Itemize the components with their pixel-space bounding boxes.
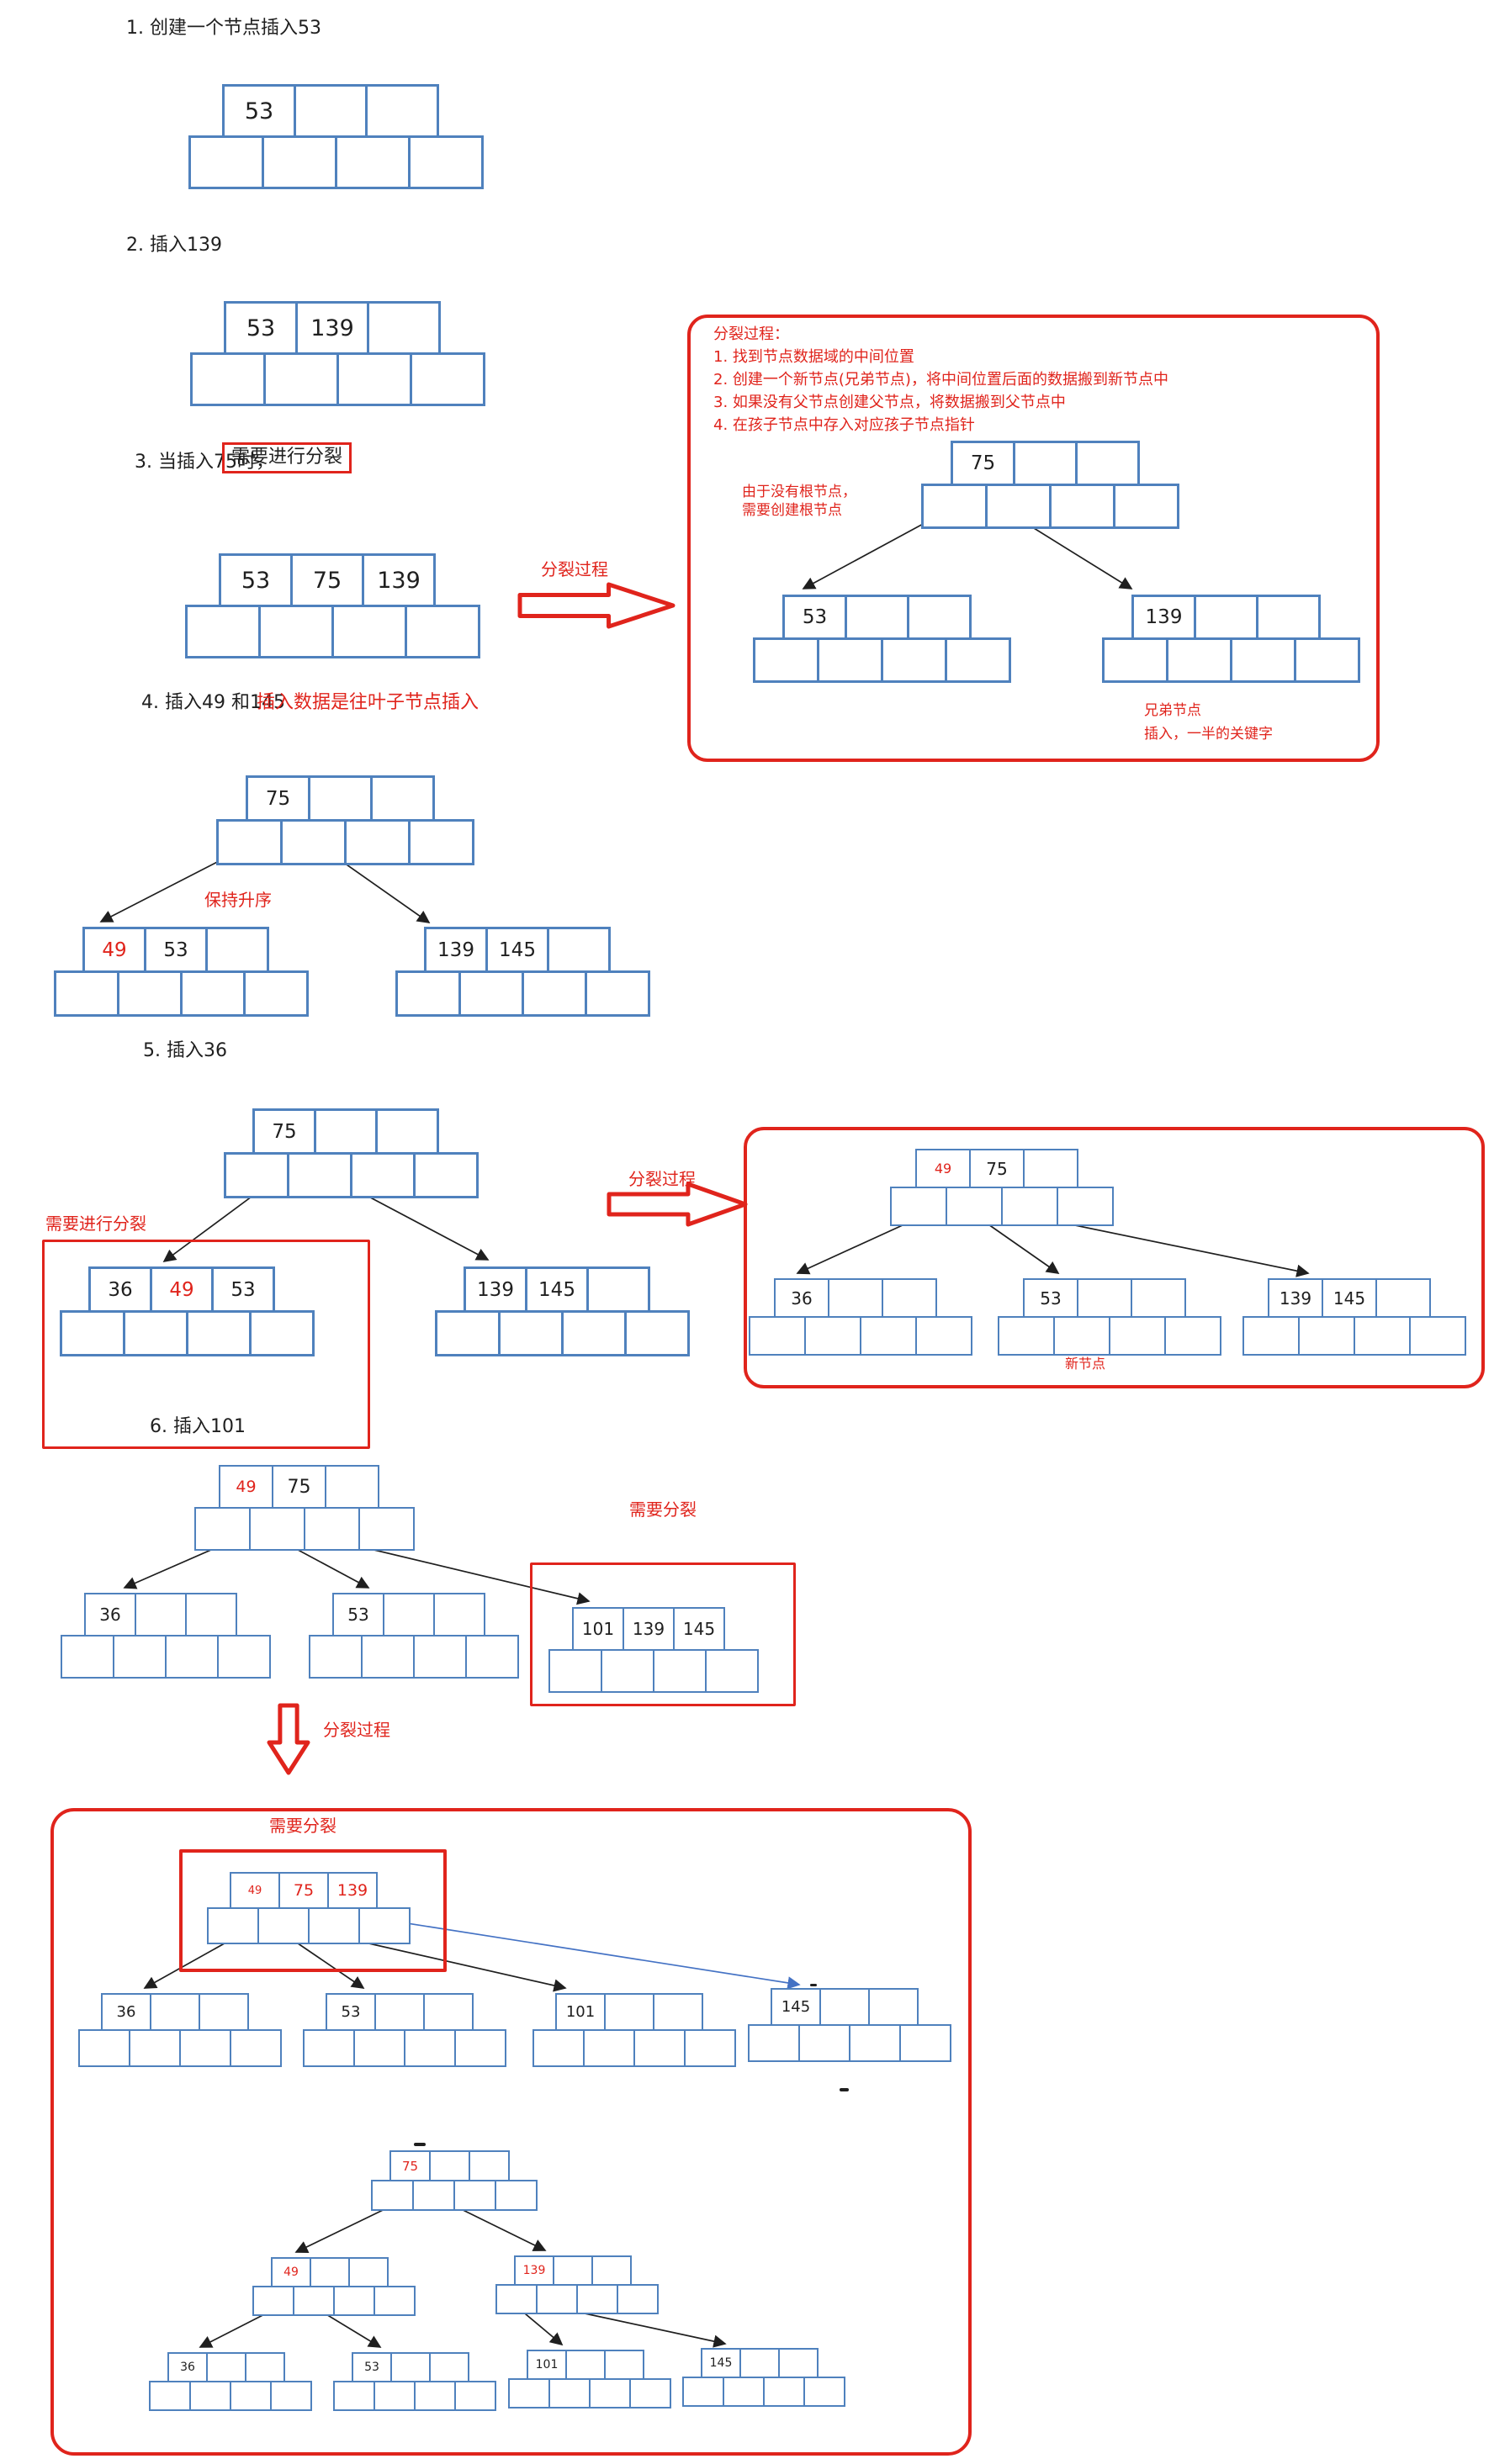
- pointer-row: [188, 135, 484, 189]
- key-cell: 139: [424, 927, 488, 973]
- pointer-cell: [548, 1649, 602, 1693]
- key-cell: [310, 2257, 350, 2287]
- pointer-cell: [190, 352, 266, 406]
- key-value: 49: [248, 1885, 262, 1897]
- key-value: 139: [633, 1619, 665, 1639]
- key-cell: 101: [527, 2350, 567, 2380]
- key-cell: 49: [82, 927, 146, 973]
- key-cell: 139: [623, 1607, 675, 1651]
- key-row: 4953: [82, 927, 269, 973]
- split-process-label-1: 分裂过程: [541, 558, 608, 580]
- insert-half-keys-note: 插入，一半的关键字: [1144, 725, 1273, 743]
- pointer-cell: [1113, 484, 1179, 529]
- key-cell: 145: [485, 927, 549, 973]
- key-cell: 139: [464, 1266, 527, 1313]
- key-value: 139: [377, 568, 421, 594]
- pointer-cell: [1242, 1316, 1300, 1356]
- key-value: 145: [781, 1998, 810, 2016]
- pointer-row: [890, 1187, 1114, 1226]
- pointer-cell: [1409, 1316, 1466, 1356]
- pointer-cell: [413, 1635, 467, 1679]
- pointer-cell: [498, 1310, 564, 1356]
- pointer-cell: [216, 819, 283, 865]
- pointer-cell: [890, 1187, 947, 1226]
- pointer-cell: [495, 2284, 538, 2314]
- pointer-cell: [522, 970, 587, 1017]
- pointer-cell: [408, 135, 484, 189]
- pointer-cell: [78, 2029, 130, 2067]
- pointer-cell: [230, 2381, 272, 2411]
- pointer-row: [998, 1316, 1221, 1356]
- pointer-cell: [257, 1907, 310, 1944]
- key-cell: 36: [167, 2352, 208, 2382]
- key-cell: 49: [915, 1149, 971, 1188]
- pointer-cell: [405, 605, 480, 658]
- pointer-cell: [1230, 637, 1296, 683]
- key-cell: 49: [271, 2257, 311, 2287]
- key-cell: [1256, 595, 1321, 640]
- pointer-cell: [374, 2381, 416, 2411]
- need-split-note-2: 需要分裂: [629, 1499, 697, 1520]
- pointer-cell: [249, 1310, 315, 1356]
- pointer-cell: [682, 2377, 724, 2407]
- pointer-cell: [188, 135, 264, 189]
- key-cell: [135, 1593, 187, 1636]
- pointer-cell: [921, 484, 988, 529]
- pointer-cell: [270, 2381, 312, 2411]
- key-value: 49: [935, 1161, 951, 1176]
- key-row: 36: [774, 1278, 937, 1318]
- pointer-row: [309, 1635, 519, 1679]
- key-cell: 139: [1268, 1278, 1323, 1318]
- key-value: 53: [347, 1605, 368, 1625]
- pointer-row: [333, 2381, 496, 2411]
- key-cell: 53: [1023, 1278, 1078, 1318]
- pointer-cell: [333, 2381, 375, 2411]
- pointer-cell: [798, 2024, 850, 2062]
- key-cell: [604, 1993, 654, 2031]
- pointer-row: [753, 637, 1011, 683]
- pointer-cell: [629, 2378, 671, 2408]
- key-cell: [868, 1988, 919, 2026]
- key-row: 4975: [219, 1465, 379, 1509]
- pointer-row: [207, 1907, 411, 1944]
- key-row: 145: [701, 2348, 819, 2378]
- key-cell: [374, 1993, 425, 2031]
- pointer-cell: [412, 2180, 455, 2211]
- key-cell: [308, 775, 373, 822]
- pointer-cell: [495, 2180, 538, 2211]
- split-step-1: 1. 找到节点数据域的中间位置: [713, 347, 914, 367]
- key-value: 49: [283, 2266, 299, 2279]
- key-cell: [370, 775, 435, 822]
- key-cell: 36: [84, 1593, 136, 1636]
- key-value: 49: [236, 1478, 256, 1496]
- pointer-cell: [561, 1310, 627, 1356]
- key-value: 53: [241, 568, 270, 594]
- pointer-cell: [1102, 637, 1168, 683]
- sibling-node-note: 兄弟节点: [1144, 701, 1201, 720]
- key-cell: 53: [332, 1593, 384, 1636]
- pointer-cell: [180, 970, 246, 1017]
- pointer-row: [190, 352, 485, 406]
- pointer-cell: [308, 1907, 360, 1944]
- pointer-row: [508, 2378, 671, 2408]
- key-value: 145: [683, 1619, 715, 1639]
- pointer-cell: [705, 1649, 759, 1693]
- key-cell: 75: [246, 775, 310, 822]
- pointer-row: [1102, 637, 1360, 683]
- key-cell: 36: [774, 1278, 829, 1318]
- pointer-row: [548, 1649, 759, 1693]
- pointer-row: [532, 2029, 736, 2067]
- key-value: 53: [803, 606, 827, 628]
- pointer-cell: [1049, 484, 1115, 529]
- key-cell: [828, 1278, 883, 1318]
- key-cell: [423, 1993, 474, 2031]
- key-cell: [429, 2352, 469, 2382]
- pointer-cell: [749, 1316, 806, 1356]
- pointer-cell: [358, 1907, 411, 1944]
- key-value: 36: [99, 1605, 120, 1625]
- pointer-cell: [410, 352, 485, 406]
- key-value: 75: [313, 568, 342, 594]
- key-cell: [375, 1108, 439, 1155]
- key-cell: [469, 2150, 510, 2181]
- key-cell: 139: [327, 1872, 378, 1909]
- key-value: 75: [266, 788, 290, 810]
- pointer-cell: [860, 1316, 917, 1356]
- pointer-row: [435, 1310, 690, 1356]
- pointer-cell: [576, 2284, 618, 2314]
- split-step-3: 3. 如果没有父节点创建父节点，将数据搬到父节点中: [713, 393, 1066, 412]
- split-process-label-3: 分裂过程: [323, 1719, 390, 1741]
- pointer-cell: [548, 2378, 591, 2408]
- pointer-cell: [624, 1310, 690, 1356]
- pointer-cell: [224, 1152, 289, 1198]
- pointer-cell: [262, 135, 337, 189]
- need-split-note-3: 需要分裂: [269, 1815, 336, 1837]
- pointer-row: [748, 2024, 951, 2062]
- key-cell: [882, 1278, 937, 1318]
- pointer-row: [194, 1507, 415, 1551]
- pointer-cell: [465, 1635, 519, 1679]
- pointer-cell: [817, 637, 883, 683]
- key-row: 139145: [1268, 1278, 1431, 1318]
- pointer-cell: [60, 1310, 125, 1356]
- key-cell: 53: [211, 1266, 275, 1313]
- pointer-cell: [404, 2029, 456, 2067]
- pointer-cell: [287, 1152, 352, 1198]
- key-value: 139: [337, 1881, 368, 1900]
- key-cell: 145: [1322, 1278, 1377, 1318]
- key-cell: [245, 2352, 285, 2382]
- pointer-cell: [304, 1507, 360, 1551]
- pointer-cell: [207, 1907, 259, 1944]
- step-6-title: 6. 插入101: [150, 1415, 246, 1440]
- pointer-cell: [1166, 637, 1232, 683]
- pointer-cell: [408, 819, 474, 865]
- pointer-cell: [915, 1316, 972, 1356]
- key-cell: [199, 1993, 249, 2031]
- key-value: 53: [1040, 1288, 1061, 1309]
- pointer-cell: [61, 1635, 114, 1679]
- pointer-cell: [617, 2284, 659, 2314]
- pointer-cell: [1057, 1187, 1114, 1226]
- split-arrow-right-2: [609, 1184, 745, 1224]
- key-row: 36: [101, 1993, 249, 2031]
- key-cell: [314, 1108, 378, 1155]
- key-cell: [553, 2255, 593, 2286]
- key-row: 101: [555, 1993, 703, 2031]
- key-cell: [819, 1988, 870, 2026]
- key-cell: 75: [272, 1465, 326, 1509]
- pointer-cell: [165, 1635, 219, 1679]
- key-cell: [653, 1993, 703, 2031]
- key-value: 139: [523, 2264, 546, 2277]
- pointer-cell: [1164, 1316, 1221, 1356]
- key-row: 75: [252, 1108, 439, 1155]
- key-row: 75: [951, 441, 1140, 486]
- pointer-row: [371, 2180, 538, 2211]
- key-value: 53: [342, 2003, 361, 2021]
- key-value: 101: [582, 1619, 614, 1639]
- pointer-cell: [1298, 1316, 1355, 1356]
- key-cell: [565, 2350, 606, 2380]
- pointer-cell: [899, 2024, 951, 2062]
- key-cell: 75: [278, 1872, 329, 1909]
- key-value: 75: [272, 1121, 296, 1143]
- key-value: 101: [566, 2003, 595, 2021]
- step-4-note: 插入数据是往叶子节点插入: [257, 691, 479, 716]
- key-cell: 36: [101, 1993, 151, 2031]
- pointer-cell: [601, 1649, 654, 1693]
- pointer-row: [1242, 1316, 1466, 1356]
- key-row: 139145: [464, 1266, 650, 1313]
- key-cell: 145: [525, 1266, 589, 1313]
- key-value: 49: [169, 1279, 193, 1301]
- key-row: 139: [514, 2255, 632, 2286]
- pointer-cell: [414, 2381, 456, 2411]
- pointer-cell: [117, 970, 183, 1017]
- key-cell: 75: [951, 441, 1015, 486]
- stray-dash: [810, 1984, 817, 1986]
- pointer-cell: [230, 2029, 282, 2067]
- key-cell: [206, 2352, 246, 2382]
- pointer-cell: [358, 1507, 415, 1551]
- key-cell: 75: [290, 553, 364, 607]
- pointer-cell: [633, 2029, 686, 2067]
- key-cell: [1075, 441, 1140, 486]
- key-cell: 49: [230, 1872, 280, 1909]
- key-row: 4975: [915, 1149, 1078, 1188]
- pointer-cell: [583, 2029, 635, 2067]
- key-row: 53: [352, 2352, 469, 2382]
- key-cell: 49: [219, 1465, 273, 1509]
- key-cell: [1013, 441, 1078, 486]
- split-arrow-down: [269, 1705, 308, 1773]
- key-value: 75: [986, 1159, 1007, 1179]
- key-row: 75: [389, 2150, 510, 2181]
- pointer-cell: [1354, 1316, 1411, 1356]
- split-step-4: 4. 在孩子节点中存入对应孩子节点指针: [713, 415, 975, 435]
- pointer-row: [303, 2029, 506, 2067]
- pointer-cell: [804, 1316, 861, 1356]
- pointer-cell: [185, 605, 261, 658]
- pointer-cell: [309, 1635, 363, 1679]
- key-value: 36: [791, 1288, 812, 1309]
- key-row: 53: [332, 1593, 485, 1636]
- pointer-cell: [249, 1507, 305, 1551]
- key-row: 101: [527, 2350, 644, 2380]
- pointer-cell: [123, 1310, 188, 1356]
- key-value: 75: [971, 452, 995, 474]
- key-cell: 53: [219, 553, 293, 607]
- pointer-cell: [258, 605, 334, 658]
- key-value: 36: [117, 2003, 136, 2021]
- pointer-cell: [186, 1310, 252, 1356]
- key-cell: [778, 2348, 819, 2378]
- pointer-cell: [194, 1507, 251, 1551]
- key-cell: [907, 595, 972, 640]
- pointer-row: [61, 1635, 271, 1679]
- key-cell: [150, 1993, 200, 2031]
- key-value: 139: [437, 939, 474, 961]
- pointer-cell: [395, 970, 461, 1017]
- pointer-row: [224, 1152, 479, 1198]
- pointer-cell: [684, 2029, 736, 2067]
- key-cell: 139: [1131, 595, 1196, 640]
- pointer-row: [749, 1316, 972, 1356]
- pointer-cell: [998, 1316, 1055, 1356]
- key-cell: [739, 2348, 780, 2378]
- pointer-cell: [361, 1635, 415, 1679]
- pointer-cell: [350, 1152, 416, 1198]
- key-row: 53139: [224, 301, 441, 355]
- pointer-cell: [753, 637, 819, 683]
- key-cell: 75: [389, 2150, 431, 2181]
- key-row: 49: [271, 2257, 389, 2287]
- key-cell: [185, 1593, 237, 1636]
- pointer-cell: [453, 2180, 496, 2211]
- key-row: 53: [222, 84, 439, 138]
- key-cell: 53: [782, 595, 847, 640]
- key-value: 36: [180, 2361, 195, 2374]
- pointer-cell: [881, 637, 947, 683]
- pointer-cell: [1001, 1187, 1058, 1226]
- pointer-cell: [243, 970, 309, 1017]
- key-value: 53: [230, 1279, 255, 1301]
- key-cell: 36: [88, 1266, 152, 1313]
- pointer-row: [149, 2381, 312, 2411]
- key-cell: [325, 1465, 379, 1509]
- key-row: 139145: [424, 927, 611, 973]
- key-value: 75: [288, 1477, 311, 1498]
- pointer-cell: [454, 2029, 506, 2067]
- pointer-cell: [946, 1187, 1003, 1226]
- key-value: 53: [245, 98, 273, 124]
- key-cell: [205, 927, 269, 973]
- key-value: 145: [499, 939, 536, 961]
- key-value: 139: [477, 1279, 514, 1301]
- key-cell: [365, 84, 439, 138]
- split-process-label-2: 分裂过程: [628, 1168, 696, 1190]
- key-cell: [383, 1593, 435, 1636]
- key-value: 53: [246, 315, 275, 341]
- stray-dash: [840, 2088, 849, 2091]
- new-node-note: 新节点: [1065, 1356, 1105, 1373]
- key-cell: [1131, 1278, 1186, 1318]
- pointer-cell: [1109, 1316, 1166, 1356]
- pointer-cell: [1053, 1316, 1110, 1356]
- pointer-cell: [508, 2378, 550, 2408]
- pointer-cell: [280, 819, 347, 865]
- pointer-cell: [1294, 637, 1360, 683]
- pointer-cell: [763, 2377, 805, 2407]
- key-cell: [604, 2350, 644, 2380]
- split-arrow-right-1: [520, 584, 673, 627]
- key-cell: [547, 927, 611, 973]
- pointer-cell: [113, 1635, 167, 1679]
- keep-ascending-note: 保持升序: [204, 889, 272, 911]
- key-cell: 75: [252, 1108, 316, 1155]
- key-cell: 139: [362, 553, 436, 607]
- stray-dash: [414, 2143, 426, 2146]
- key-row: 36: [167, 2352, 285, 2382]
- pointer-cell: [353, 2029, 405, 2067]
- pointer-cell: [458, 970, 524, 1017]
- pointer-cell: [413, 1152, 479, 1198]
- key-row: 53: [782, 595, 972, 640]
- split-steps-heading: 分裂过程：: [713, 325, 789, 344]
- pointer-cell: [331, 605, 407, 658]
- key-cell: [591, 2255, 632, 2286]
- pointer-cell: [371, 2180, 414, 2211]
- pointer-cell: [945, 637, 1011, 683]
- key-row: 5375139: [219, 553, 436, 607]
- pointer-cell: [129, 2029, 181, 2067]
- key-cell: 75: [969, 1149, 1025, 1188]
- pointer-cell: [803, 2377, 845, 2407]
- pointer-cell: [179, 2029, 231, 2067]
- pointer-row: [60, 1310, 315, 1356]
- key-cell: 53: [224, 301, 298, 355]
- key-row: 101139145: [572, 1607, 725, 1651]
- key-row: 4975139: [230, 1872, 378, 1909]
- key-cell: [348, 2257, 389, 2287]
- pointer-row: [78, 2029, 282, 2067]
- key-value: 139: [310, 315, 354, 341]
- pointer-row: [495, 2284, 659, 2314]
- key-cell: 53: [326, 1993, 376, 2031]
- key-row: 145: [771, 1988, 919, 2026]
- pointer-cell: [252, 2286, 294, 2316]
- key-cell: 145: [701, 2348, 741, 2378]
- key-cell: [294, 84, 368, 138]
- step-2-title: 2. 插入139: [126, 234, 222, 258]
- pointer-cell: [189, 2381, 231, 2411]
- pointer-row: [395, 970, 650, 1017]
- key-cell: [1023, 1149, 1078, 1188]
- key-row: 36: [84, 1593, 237, 1636]
- pointer-cell: [653, 1649, 707, 1693]
- pointer-row: [216, 819, 474, 865]
- key-value: 75: [402, 2159, 418, 2174]
- key-cell: 145: [771, 1988, 821, 2026]
- step-5-title: 5. 插入36: [143, 1039, 227, 1064]
- key-cell: [586, 1266, 650, 1313]
- pointer-row: [185, 605, 480, 658]
